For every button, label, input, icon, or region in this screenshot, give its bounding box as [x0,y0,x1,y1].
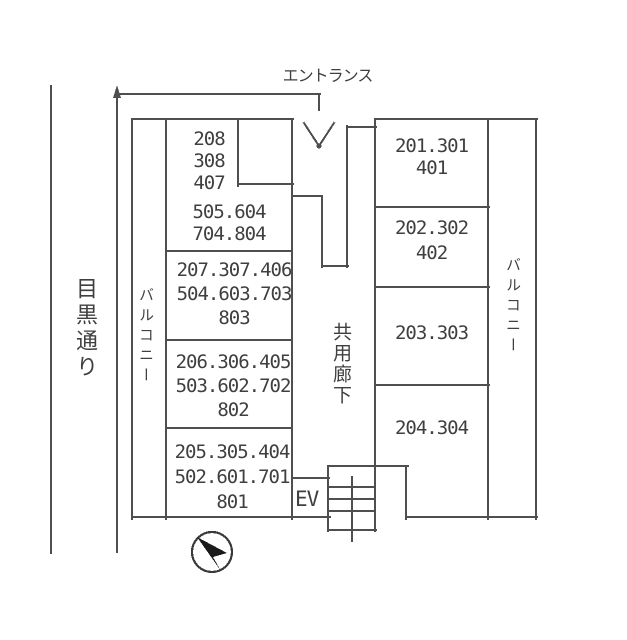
room-number: 407 [165,172,253,194]
room-number: 202.302 [375,216,488,241]
room-number: 704.804 [164,223,294,245]
room-number: 203.303 [375,322,488,344]
room-number: 503.602.702 [165,374,301,398]
floor-plan-canvas: エントランス 目黒通り バルコニー バルコニー 共用廊下 EV 208 308 … [0,0,627,640]
room-label-505-604-704-804: 505.604 704.804 [164,201,294,245]
room-label-204-304: 204.304 [375,417,488,439]
room-number: 803 [166,306,302,330]
room-number: 801 [164,490,300,515]
room-number: 504.603.703 [166,282,302,306]
room-number: 308 [165,150,253,172]
balcony-right-label: バルコニー [503,257,524,357]
room-number: 401 [375,157,488,179]
corridor-label: 共用廊下 [328,322,355,406]
room-label-203-303: 203.303 [375,322,488,344]
room-number: 205.305.404 [164,440,300,465]
down-arrow-icon [304,123,334,149]
compass-north-icon [192,532,232,572]
room-label-207-307-406: 207.307.406 504.603.703 803 [166,258,302,330]
street-name-label: 目黒通り [68,277,100,381]
room-label-202-302-402: 202.302 402 [375,216,488,266]
room-number: 201.301 [375,135,488,157]
room-number: 207.307.406 [166,258,302,282]
room-number: 502.601.701 [164,465,300,490]
room-number: 208 [165,128,253,150]
room-label-205-305-404: 205.305.404 502.601.701 801 [164,440,300,515]
staircase [328,466,408,541]
up-arrow-icon [113,85,121,98]
balcony-left-label: バルコニー [136,287,157,387]
room-label-206-306-405: 206.306.405 503.602.702 802 [165,350,301,422]
room-label-208-308-407: 208 308 407 [165,128,253,194]
room-number: 505.604 [164,201,294,223]
entrance-label: エントランス [280,62,375,86]
room-label-201-301-401: 201.301 401 [375,135,488,179]
room-number: 402 [375,241,488,266]
room-number: 802 [165,398,301,422]
room-number: 206.306.405 [165,350,301,374]
room-number: 204.304 [375,417,488,439]
